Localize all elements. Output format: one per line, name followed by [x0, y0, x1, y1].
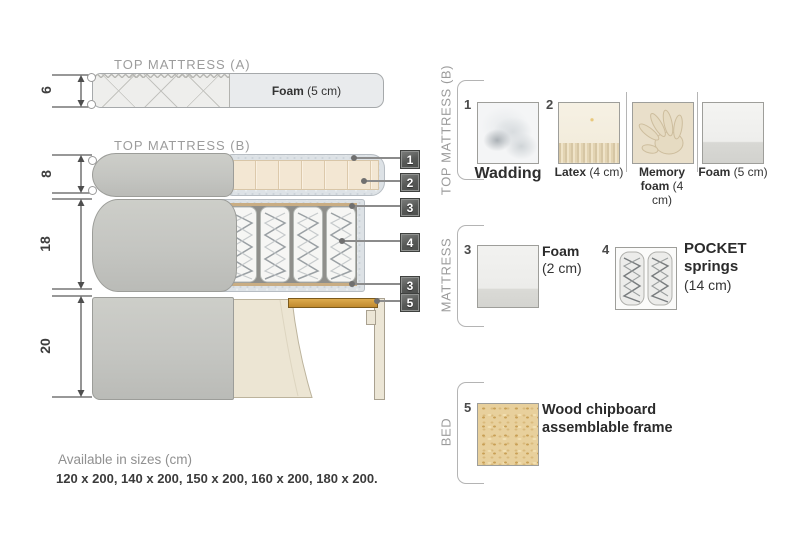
- memory-foam-label: Memory foam (4 cm): [630, 165, 694, 207]
- bed-fabric-graphic: [92, 297, 234, 400]
- callout-dot-4: [339, 238, 345, 244]
- eyelet-ring: [87, 73, 96, 82]
- callout-badge-3: 3: [400, 198, 420, 217]
- hand-imprint-icon: [633, 103, 693, 163]
- wadding-swatch: [477, 102, 539, 164]
- callout-dot-1: [351, 155, 357, 161]
- eyelet-ring: [87, 100, 96, 109]
- callout-line-1: [355, 157, 400, 159]
- eyelet-ring: [88, 156, 97, 165]
- pocket-springs-graphic: [226, 203, 357, 291]
- zigzag-edge-graphic: [93, 74, 229, 78]
- foam-5cm-swatch: [702, 102, 764, 164]
- dimension-label-6: 6: [38, 86, 54, 94]
- callout-dot-3: [349, 203, 355, 209]
- available-sizes-heading: Available in sizes (cm): [58, 452, 192, 467]
- legend-divider: [626, 92, 627, 172]
- available-sizes-list: 120 x 200, 140 x 200, 150 x 200, 160 x 2…: [56, 471, 378, 486]
- wadding-label: Wadding: [470, 165, 546, 184]
- top-mattress-a-foam-label: Foam (5 cm): [230, 74, 383, 107]
- callout-badge-5: 5: [400, 293, 420, 312]
- fabric-cover-graphic: [92, 153, 234, 197]
- callout-line-3b: [353, 283, 400, 285]
- dimension-arrow-20: [50, 295, 94, 398]
- callout-line-3: [353, 205, 400, 207]
- wood-slat-graphic: [288, 298, 378, 308]
- callout-badge-4: 4: [400, 233, 420, 252]
- quilted-wadding-graphic: [93, 74, 230, 107]
- latex-swatch: [558, 102, 620, 164]
- callout-line-2: [365, 180, 400, 182]
- pocket-springs-swatch: [615, 247, 677, 310]
- frame-bracket-graphic: [366, 310, 376, 325]
- legend-number-3: 3: [464, 242, 471, 257]
- callout-dot-5: [374, 298, 380, 304]
- top-mattress-a-title: TOP MATTRESS (A): [114, 57, 251, 72]
- legend-section-top-mattress-b: TOP MATTRESS (B): [439, 65, 454, 195]
- callout-dot-2: [361, 178, 367, 184]
- dimension-arrow-18: [50, 198, 94, 290]
- pocket-springs-icon: [616, 248, 676, 309]
- eyelet-ring: [88, 186, 97, 195]
- callout-badge-1: 1: [400, 150, 420, 169]
- pocket-springs-label: POCKET springs (14 cm): [684, 240, 760, 295]
- callout-line-4: [343, 240, 400, 242]
- legend-number-2: 2: [546, 97, 553, 112]
- legend-section-mattress: MATTRESS: [439, 238, 454, 313]
- dimension-label-18: 18: [37, 236, 53, 252]
- chipboard-label: Wood chipboard assemblable frame: [542, 402, 692, 437]
- fabric-cover-graphic: [92, 199, 237, 292]
- callout-line-5: [378, 300, 400, 302]
- top-mattress-b-title: TOP MATTRESS (B): [114, 138, 251, 153]
- latex-label: Latex (4 cm): [550, 165, 628, 179]
- latex-blocks-graphic: [233, 160, 379, 190]
- chipboard-swatch: [477, 403, 539, 466]
- top-mattress-a-graphic: Foam (5 cm): [92, 73, 384, 108]
- memory-foam-swatch: [632, 102, 694, 164]
- callout-dot-3b: [349, 281, 355, 287]
- foam-5cm-label: Foam (5 cm): [694, 165, 772, 179]
- foam-2cm-swatch: [477, 245, 539, 308]
- legend-number-1: 1: [464, 97, 471, 112]
- legend-divider: [697, 92, 698, 172]
- callout-badge-2: 2: [400, 173, 420, 192]
- dimension-label-20: 20: [37, 338, 53, 354]
- legend-number-5: 5: [464, 400, 471, 415]
- dimension-label-8: 8: [38, 170, 54, 178]
- legend-section-bed: BED: [439, 418, 454, 447]
- foam-2cm-label: Foam(2 cm): [542, 243, 582, 277]
- legend-number-4: 4: [602, 242, 609, 257]
- bed-skirt-graphic: [228, 299, 313, 403]
- mattress-construction-diagram: 6 8 18 20 TOP MATTRESS (A) Foam (5 cm) T…: [0, 0, 800, 533]
